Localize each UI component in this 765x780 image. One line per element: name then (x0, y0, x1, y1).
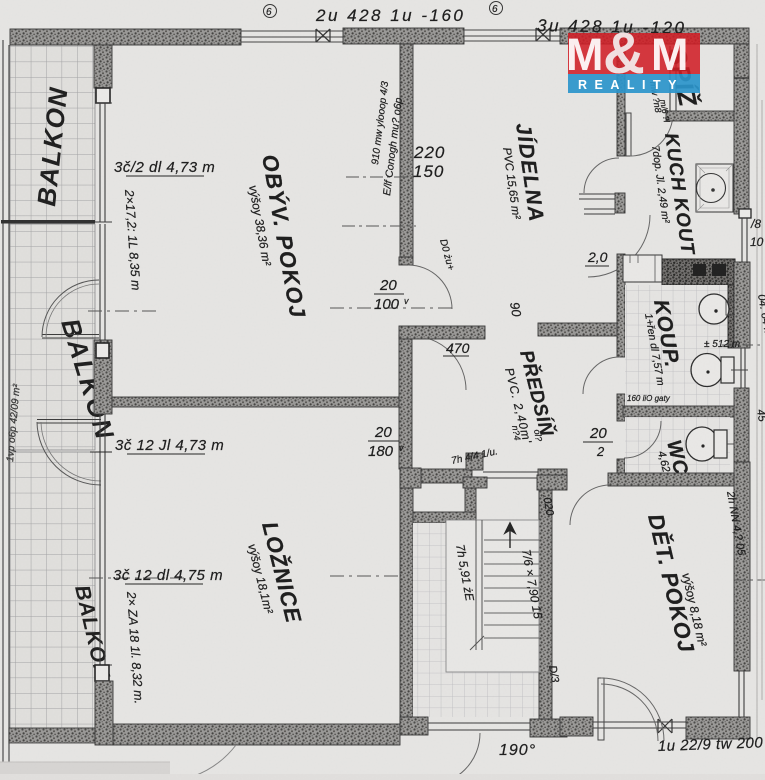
svg-text:REALITY: REALITY (578, 78, 684, 92)
svg-text:M: M (651, 29, 689, 80)
svg-text:M: M (566, 29, 604, 80)
